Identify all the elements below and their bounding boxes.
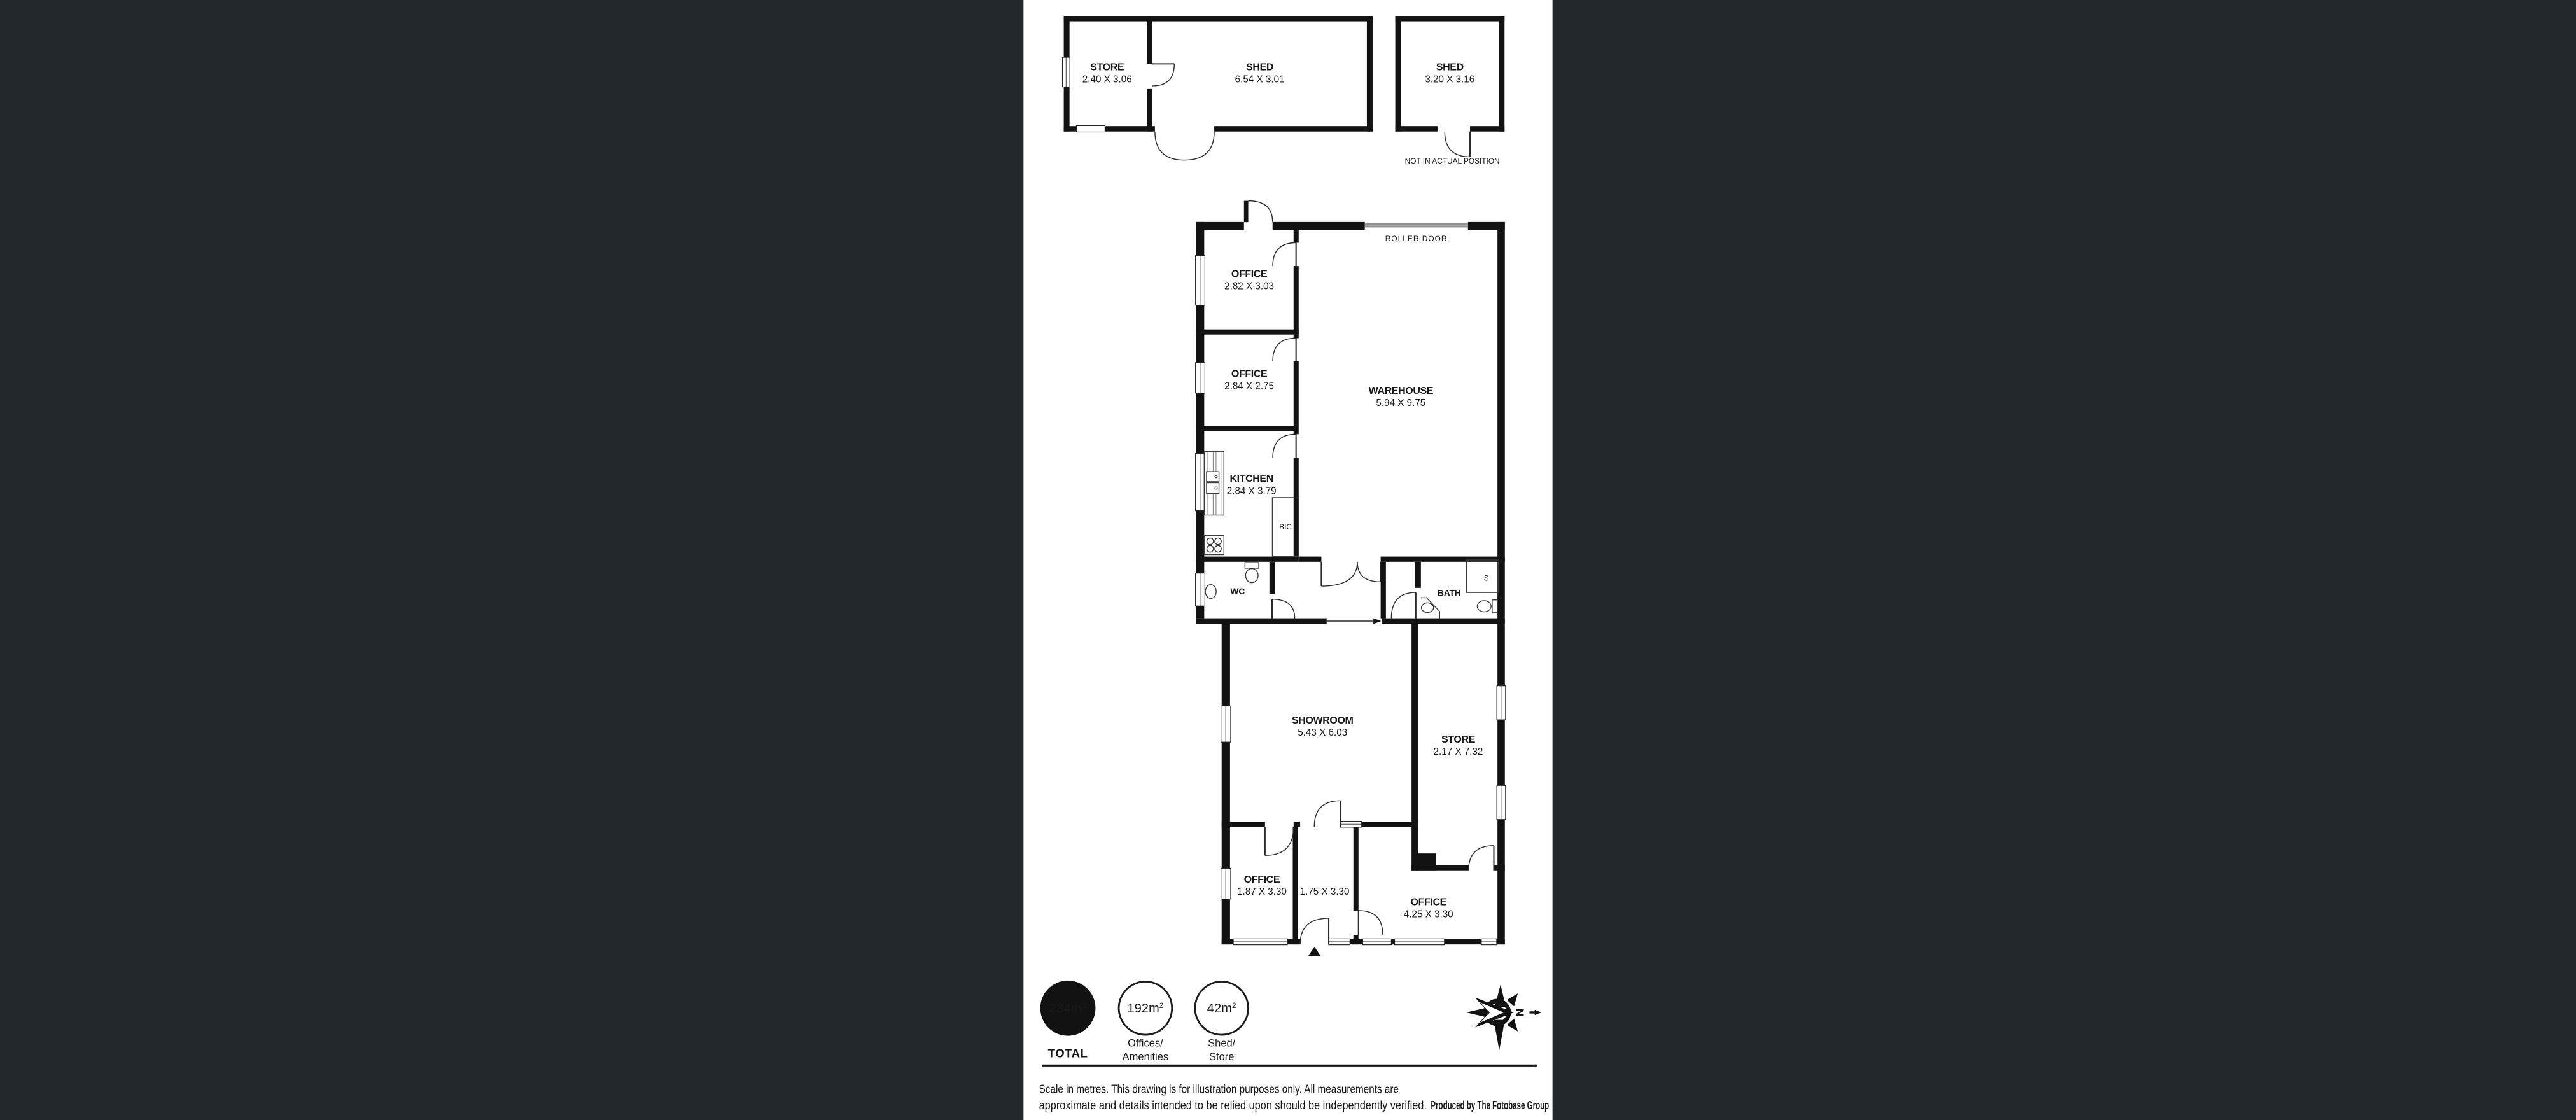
legend-total-sup: 2 [1082,1001,1087,1010]
hall-dims: 1.75 X 3.30 [1300,886,1350,897]
room-label: WAREHOUSE [1369,386,1434,396]
footer-divider [1042,1065,1537,1067]
room-dims: 4.25 X 3.30 [1404,909,1453,920]
roller-door-label: ROLLER DOOR [1385,234,1448,243]
room-label-store-shed: STORE [1090,62,1124,73]
footer-line1: Scale in metres. This drawing is for ill… [1039,1083,1399,1096]
room-dims: 2.84 X 2.75 [1224,381,1274,392]
svg-text:42m2: 42m2 [1207,1001,1236,1016]
room-label: KITCHEN [1229,473,1273,484]
room-label: OFFICE [1231,269,1268,280]
room-dims: 2.84 X 3.79 [1227,486,1277,496]
legend-shed-value: 42m [1207,1002,1232,1016]
room-dims: 5.94 X 9.75 [1376,398,1425,409]
bic-label: BIC [1279,522,1292,531]
shower-label: S [1484,574,1489,583]
room-label: BATH [1438,588,1461,598]
room-dims: 2.82 X 3.03 [1224,281,1274,292]
legend-shed-label2: Store [1209,1051,1234,1063]
room-label: OFFICE [1231,369,1268,380]
legend-offices-label2: Amenities [1123,1051,1168,1063]
room-label-shed-large: SHED [1246,62,1273,73]
room-dims: 2.17 X 7.32 [1434,746,1483,757]
room-dims-shed-large: 6.54 X 3.01 [1235,74,1285,85]
svg-text:234m2: 234m2 [1049,1001,1086,1016]
floorplan-canvas: STORE 2.40 X 3.06 SHED 6.54 X 3.01 SHED … [0,0,2576,1120]
room-label: OFFICE [1244,874,1280,885]
legend-total-value: 234m [1049,1002,1082,1016]
footer-line2-bold: Produced by The Fotobase Group [1431,1099,1549,1112]
window [1340,822,1361,827]
stove-icon [1204,535,1224,554]
legend-shed-label1: Shed/ [1208,1038,1236,1049]
compass-north-label: N [1513,1009,1526,1017]
room-dims: 1.87 X 3.30 [1237,886,1287,897]
legend-offices-value: 192m [1127,1002,1159,1016]
room-label-shed-small: SHED [1436,62,1464,73]
legend-total: 234m2 TOTAL [1040,981,1096,1060]
room-dims: 5.43 X 6.03 [1298,727,1347,738]
svg-text:approximate and details intend: approximate and details intended to be r… [1039,1099,1550,1112]
legend-offices-sup: 2 [1159,1001,1164,1010]
note-not-actual-position: NOT IN ACTUAL POSITION [1405,157,1500,165]
room-dims-store-shed: 2.40 X 3.06 [1082,74,1132,85]
sink-counter-icon [1204,452,1224,515]
legend-shed-sup: 2 [1232,1001,1236,1010]
room-label: STORE [1441,734,1476,745]
legend-offices-label1: Offices/ [1128,1038,1163,1049]
room-label: WC [1230,586,1245,596]
svg-text:192m2: 192m2 [1127,1001,1163,1016]
legend-total-label: TOTAL [1048,1047,1088,1060]
room-dims-shed-small: 3.20 X 3.16 [1425,74,1474,85]
room-label: SHOWROOM [1292,715,1354,726]
room-label: OFFICE [1411,897,1447,907]
footer-line2: approximate and details intended to be r… [1039,1099,1427,1112]
roller-door-icon [1365,222,1468,230]
